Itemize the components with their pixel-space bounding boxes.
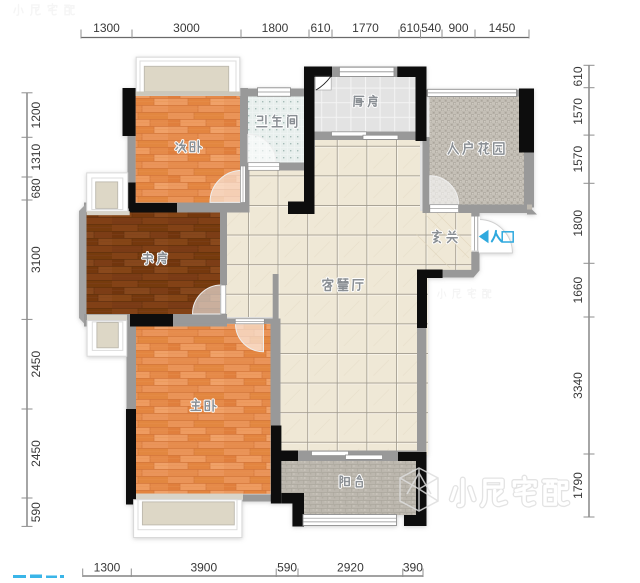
- svg-text:1770: 1770: [352, 21, 379, 35]
- svg-text:1790: 1790: [571, 472, 585, 499]
- svg-text:1570: 1570: [571, 146, 585, 173]
- svg-text:1800: 1800: [262, 21, 289, 35]
- svg-text:1300: 1300: [93, 21, 120, 35]
- svg-text:2450: 2450: [29, 351, 43, 378]
- svg-text:1570: 1570: [571, 98, 585, 125]
- svg-text:1300: 1300: [94, 561, 121, 575]
- svg-text:1310: 1310: [29, 144, 43, 171]
- svg-text:1200: 1200: [29, 101, 43, 128]
- svg-text:680: 680: [29, 178, 43, 198]
- svg-text:610: 610: [400, 21, 420, 35]
- svg-text:1800: 1800: [571, 210, 585, 237]
- svg-text:3000: 3000: [173, 21, 200, 35]
- svg-text:3340: 3340: [571, 372, 585, 399]
- svg-text:3100: 3100: [29, 246, 43, 273]
- svg-text:540: 540: [421, 21, 441, 35]
- svg-text:3900: 3900: [190, 561, 217, 575]
- svg-text:390: 390: [403, 561, 423, 575]
- svg-text:900: 900: [448, 21, 468, 35]
- svg-text:2920: 2920: [337, 561, 364, 575]
- svg-text:1450: 1450: [489, 21, 516, 35]
- svg-text:2450: 2450: [29, 440, 43, 467]
- svg-text:610: 610: [310, 21, 330, 35]
- svg-text:1660: 1660: [571, 276, 585, 303]
- svg-text:590: 590: [277, 561, 297, 575]
- svg-text:610: 610: [571, 66, 585, 86]
- svg-text:590: 590: [29, 502, 43, 522]
